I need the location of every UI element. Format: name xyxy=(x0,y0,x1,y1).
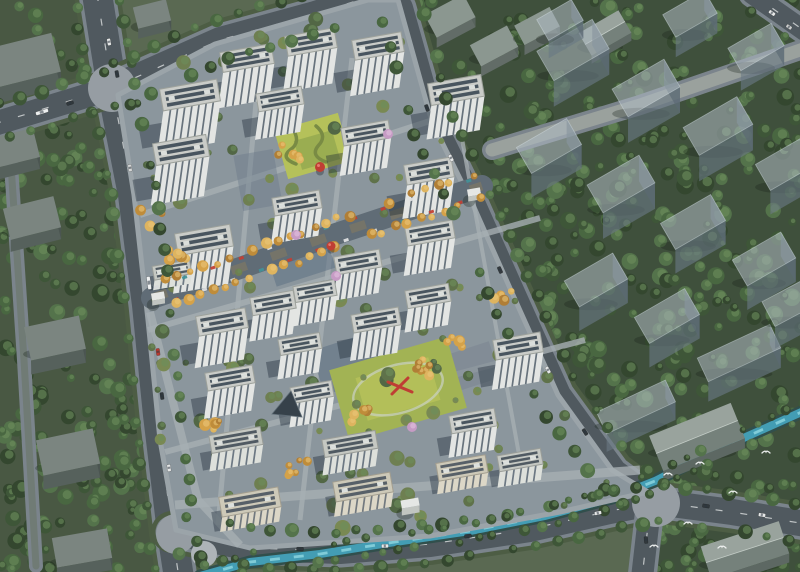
atmosphere-overlay xyxy=(0,0,800,572)
rendered-aerial-view xyxy=(0,0,800,572)
aerial-residential-masterplan-rendering xyxy=(0,0,800,572)
